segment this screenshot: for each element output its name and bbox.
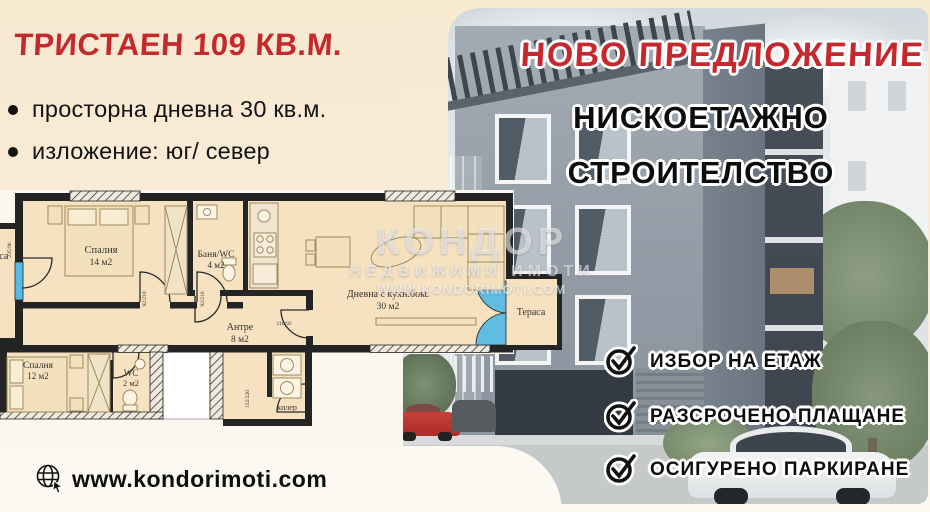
bullet-text: изложение: юг/ север [32,138,270,165]
room-area: 2 м2 [123,378,139,388]
glass-window [15,262,23,300]
agency-watermark: КОНДОР НЕДВИЖИМИ ИМОТИ WWW.KONDORIMOTI.C… [346,222,598,298]
feature-item: РАЗСРОЧЕНО ПЛАЩАНЕ [604,399,905,433]
bullet-text: просторна дневна 30 кв.м. [32,96,326,123]
cream-corner-patch [400,0,448,196]
page-title: ТРИСТАЕН 109 КВ.М. [13,27,343,63]
room-label: Спалня [84,245,117,256]
feature-item: ОСИГУРЕНО ПАРКИРАНЕ [604,452,909,486]
car-wheel [402,432,416,441]
building-side-face [703,23,765,450]
website-url: www.kondorimoti.com [72,466,327,493]
room-label: килер [277,403,297,412]
car-wheel [438,432,452,441]
website-card: www.kondorimoti.com [0,446,562,512]
warm-window-glow [770,268,814,294]
checkmark-icon [604,452,638,486]
feature-text: ОСИГУРЕНО ПАРКИРАНЕ [650,452,909,481]
car-wheel [714,488,748,505]
feature-text: ИЗБОР НА ЕТАЖ [650,344,822,373]
room-area: 14 м2 [90,258,113,268]
light-shaft [163,352,210,419]
car-wheel [836,488,870,505]
room-area: 12 м2 [27,371,48,381]
watermark-line2: НЕДВИЖИМИ ИМОТИ [346,262,598,282]
dim-label: 235/96 [7,242,13,258]
checkmark-icon [604,344,638,378]
watermark-url: WWW.KONDORIMOTI.COM [346,282,598,298]
subheadline-line1: НИСКОЕТАЖНО [505,100,897,136]
dim-label: 152/220 [245,390,251,408]
room-area: 4 м2 [208,260,225,270]
watermark-brand: КОНДОР [346,222,598,262]
dim-label: 92/210 [142,291,148,307]
room-label: Спалня [23,361,54,371]
bullet-item: просторна дневна 30 кв.м. [8,96,326,123]
feature-text: РАЗСРОЧЕНО ПЛАЩАНЕ [650,399,905,428]
room-label: Антре [227,322,254,333]
dim-label: 210/92 [276,321,292,327]
room-label: Баня/WC [197,250,234,260]
bullet-icon [8,147,18,157]
bullet-icon [8,105,18,115]
globe-icon [34,462,66,494]
room-label: Тераса [517,307,546,318]
room-label: WC [124,368,139,378]
dim-label: 92/210 [200,291,206,307]
checkmark-icon [604,399,638,433]
feature-item: ИЗБОР НА ЕТАЖ [604,344,822,378]
room-area: 8 м2 [231,335,249,345]
room-area: 30 м2 [377,302,400,312]
bullet-item: изложение: юг/ север [8,138,270,165]
subheadline-line2: СТРОИТЕЛСТВО [505,155,897,191]
headline: НОВО ПРЕДЛОЖЕНИЕ [514,36,930,75]
